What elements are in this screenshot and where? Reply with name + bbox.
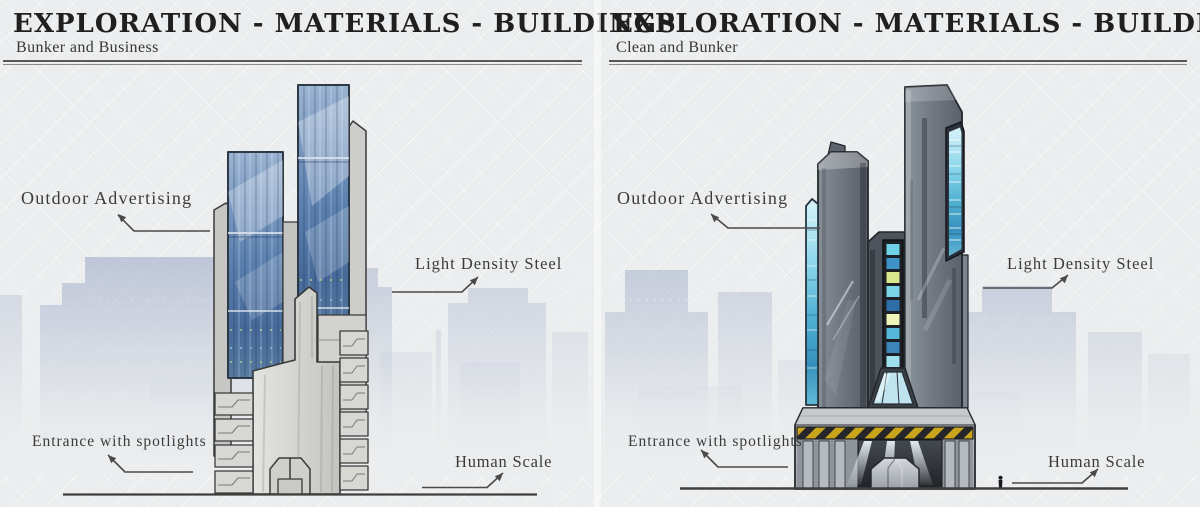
- label-outdoor-advertising: Outdoor Advertising: [21, 188, 192, 209]
- panel-seam: [594, 0, 601, 507]
- city-skyline: [605, 270, 1190, 455]
- page-title: EXPLORATION - MATERIALS - BUILDINGS: [13, 9, 677, 39]
- human-figure: [999, 476, 1003, 489]
- hazard-stripe-band: [797, 427, 973, 439]
- base-pilasters: [803, 441, 969, 489]
- building-left: [214, 85, 368, 494]
- header-divider-thin: [3, 64, 582, 65]
- page-title: EXPLORATION - MATERIALS - BUILDINGS: [613, 9, 1200, 39]
- building-right: [795, 85, 975, 489]
- city-skyline: [0, 257, 588, 455]
- panel-subtitle: Bunker and Business: [16, 39, 159, 57]
- concept-art-sheet: EXPLORATION - MATERIALS - BUILDINGS Bunk…: [0, 0, 1200, 507]
- header-divider-thin: [609, 64, 1187, 65]
- panel-subtitle: Clean and Bunker: [616, 39, 738, 57]
- header-divider: [609, 60, 1187, 62]
- panel-clean-and-bunker: EXPLORATION - MATERIALS - BUILDINGS Clea…: [600, 0, 1200, 507]
- window-light-segments: [887, 244, 900, 423]
- spotlight-beams: [847, 441, 933, 485]
- entrance-right: [871, 458, 919, 489]
- panel-bunker-and-business: EXPLORATION - MATERIALS - BUILDINGS Bunk…: [0, 0, 600, 507]
- entrance-recess: [858, 440, 942, 489]
- label-entrance-spotlights: Entrance with spotlights: [32, 433, 207, 451]
- label-human-scale: Human Scale: [455, 452, 552, 472]
- label-light-density-steel: Light Density Steel: [1007, 254, 1154, 274]
- label-entrance-spotlights: Entrance with spotlights: [628, 433, 803, 451]
- entrance-left: [270, 458, 310, 494]
- label-human-scale: Human Scale: [1048, 452, 1145, 472]
- label-light-density-steel: Light Density Steel: [415, 254, 562, 274]
- label-outdoor-advertising: Outdoor Advertising: [617, 188, 788, 209]
- header-divider: [3, 60, 582, 62]
